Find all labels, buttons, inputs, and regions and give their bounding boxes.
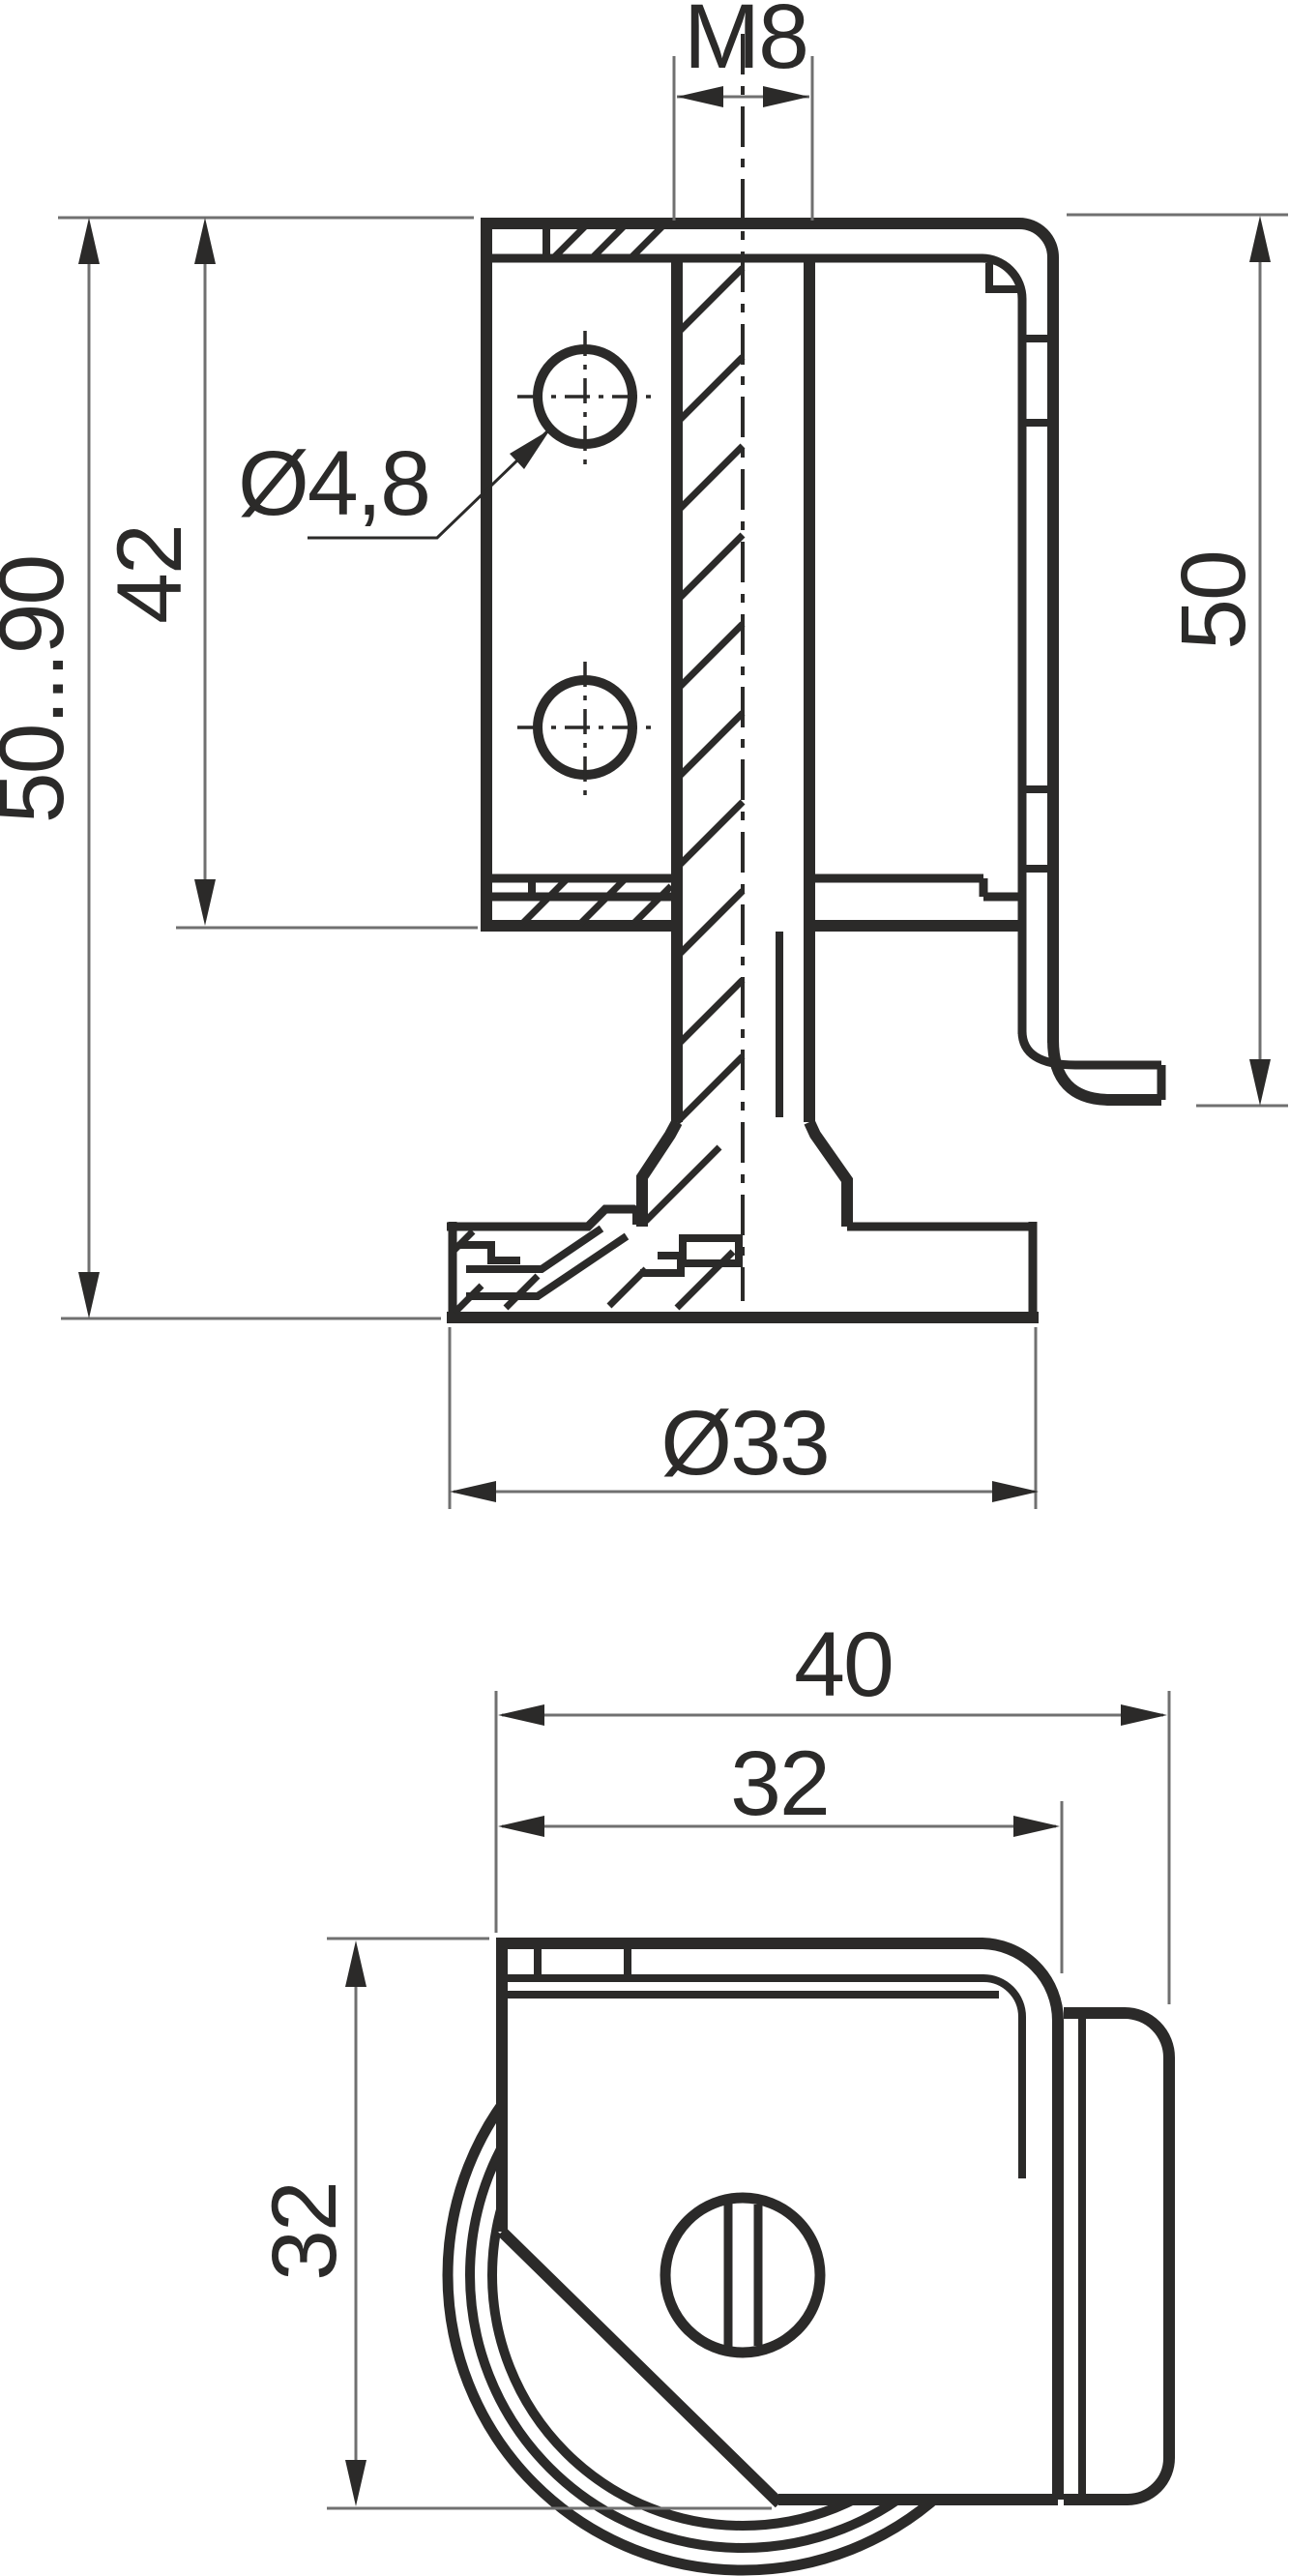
dim-hole-diameter: Ø4,8	[238, 429, 550, 538]
arrowhead	[1013, 1816, 1060, 1837]
dim-label-33: Ø33	[660, 1392, 829, 1495]
screw-end	[665, 2198, 820, 2353]
arrowhead	[763, 86, 809, 107]
dim-label-40: 40	[794, 1614, 893, 1716]
arrowhead	[1249, 1059, 1271, 1106]
arrowhead	[677, 86, 723, 107]
arrowhead	[345, 1940, 366, 1987]
dim-body-width: 32	[498, 1732, 1062, 1973]
arrowhead	[498, 1816, 544, 1837]
drawing-canvas: M8 Ø4,8 42 50...90	[0, 0, 1290, 2576]
arrowhead	[498, 1704, 544, 1726]
dim-base-diameter: Ø33	[450, 1327, 1039, 1509]
dim-label-32-depth: 32	[253, 2182, 356, 2281]
hatch-rod	[677, 268, 743, 1122]
bracket-inner-profile	[486, 258, 1022, 1034]
l-flange-inner	[1022, 1031, 1161, 1065]
foot-cone-right	[809, 1122, 847, 1227]
hole-centerline	[517, 662, 653, 795]
dim-hole-pitch: 42	[58, 218, 478, 928]
arrowhead	[992, 1481, 1039, 1502]
arrowhead	[194, 879, 216, 926]
section-hatching	[452, 223, 743, 1313]
arrowhead	[1249, 216, 1271, 262]
technical-drawing-sheet: M8 Ø4,8 42 50...90	[0, 0, 1290, 2576]
bottom-flange-step	[815, 878, 1022, 897]
arrowhead	[450, 1481, 496, 1502]
dim-label-42: 42	[99, 525, 201, 624]
dim-label-hole: Ø4,8	[238, 432, 429, 535]
foot-clip-detail	[458, 1245, 520, 1260]
arrowhead	[1121, 1704, 1167, 1726]
dim-side-height: 50	[1067, 215, 1288, 1106]
dim-label-m8: M8	[684, 0, 807, 88]
arrowhead	[78, 1272, 100, 1318]
arrowhead	[345, 2460, 366, 2506]
arrowhead	[194, 218, 216, 264]
arrowhead	[78, 218, 100, 264]
screw-circle	[665, 2198, 820, 2353]
foot-top-left	[447, 1209, 650, 1227]
l-flange-outer	[1053, 1040, 1161, 1100]
dim-adjust-range: 50...90	[0, 218, 441, 1318]
bracket-outer-profile	[481, 223, 1053, 1043]
mounting-holes	[517, 331, 653, 795]
bottom-view: 40 32 32	[253, 1614, 1169, 2570]
dim-label-range: 50...90	[0, 556, 83, 824]
extension-line	[1067, 215, 1288, 1106]
dim-label-32-width: 32	[730, 1732, 829, 1835]
dim-label-50: 50	[1162, 551, 1265, 650]
front-section-view: M8 Ø4,8 42 50...90	[0, 0, 1288, 1509]
